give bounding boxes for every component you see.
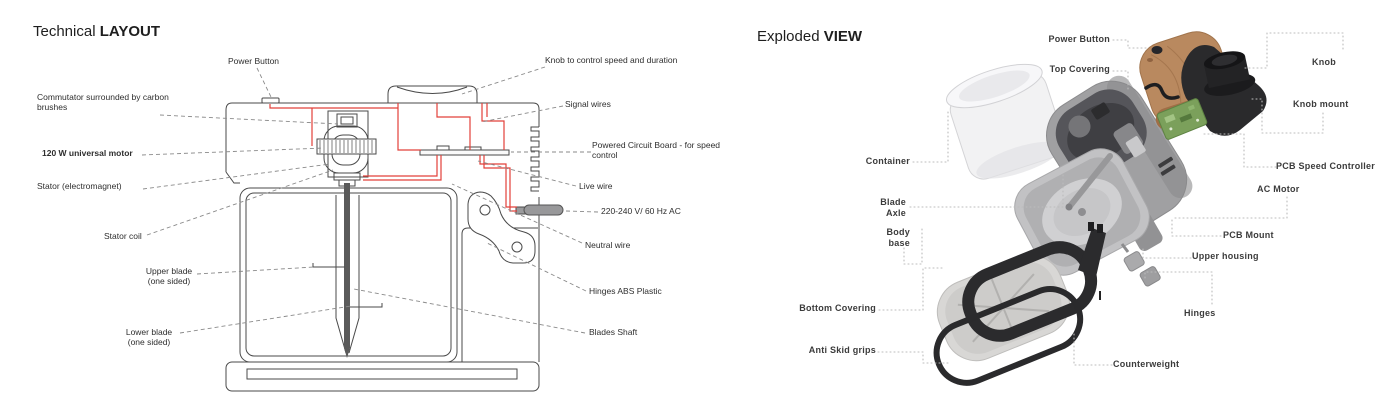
technical-drawing bbox=[226, 86, 563, 391]
label-blades-shaft: Blades Shaft bbox=[589, 327, 637, 337]
leader-motor bbox=[142, 148, 324, 155]
label-stator: Stator (electromagnet) bbox=[37, 181, 122, 191]
leader-power-button bbox=[257, 68, 271, 97]
hinge-hole-lower bbox=[512, 242, 522, 252]
label-upper-housing: Upper housing bbox=[1192, 251, 1259, 262]
blade-axle-tip bbox=[1066, 204, 1073, 211]
power-button-shape bbox=[262, 98, 279, 103]
left-panel-title: Technical LAYOUT bbox=[33, 23, 160, 40]
wire-power-button bbox=[270, 104, 398, 108]
pcb-component-1 bbox=[437, 146, 449, 150]
diagram-canvas: Technical LAYOUT Exploded VIEW Power But… bbox=[0, 0, 1400, 410]
leader-pcb-mount bbox=[1172, 218, 1221, 236]
wire-knob-mid bbox=[437, 103, 470, 150]
label-pcb-mount: PCB Mount bbox=[1223, 230, 1274, 241]
label-knob-mount: Knob mount bbox=[1293, 99, 1349, 110]
upper-blade-shape bbox=[313, 263, 345, 267]
left-title-normal: Technical bbox=[33, 23, 100, 40]
label-power-button-r: Power Button bbox=[1028, 34, 1110, 45]
leader-lower-blade bbox=[180, 306, 351, 333]
wire-knob-left bbox=[398, 103, 421, 150]
base-slot bbox=[247, 369, 517, 379]
leader-signal-wires bbox=[481, 106, 563, 122]
hinges-part bbox=[1122, 244, 1161, 287]
base-outer bbox=[226, 362, 539, 391]
exploded-render bbox=[928, 25, 1267, 392]
pcb-component-2 bbox=[465, 147, 481, 150]
leader-container bbox=[913, 112, 948, 162]
left-title-bold: LAYOUT bbox=[100, 23, 160, 40]
label-bottom-covering: Bottom Covering bbox=[786, 303, 876, 314]
heat-sink-fins bbox=[531, 127, 539, 191]
wire-motor-a bbox=[363, 155, 437, 176]
leader-pcb-speed bbox=[1203, 134, 1276, 167]
leader-live-wire bbox=[478, 161, 576, 186]
label-top-covering: Top Covering bbox=[1028, 64, 1110, 75]
wire-signal-a bbox=[482, 103, 504, 150]
motor-top-box bbox=[337, 114, 357, 127]
motor-top-box-inner bbox=[341, 117, 353, 124]
right-title-normal: Exploded bbox=[757, 28, 824, 45]
leader-hinges-abs bbox=[487, 243, 586, 291]
leader-commutator bbox=[160, 115, 338, 124]
lower-blade-shape bbox=[350, 303, 382, 307]
label-pcb: Powered Circuit Board - for speed contro… bbox=[592, 140, 734, 160]
leader-power-button-r bbox=[1113, 40, 1147, 48]
label-motor: 120 W universal motor bbox=[42, 148, 133, 158]
label-stator-coil: Stator coil bbox=[104, 231, 142, 241]
leader-voltage bbox=[566, 211, 598, 212]
leader-upper-blade bbox=[197, 267, 314, 274]
label-knob-control: Knob to control speed and duration bbox=[545, 55, 677, 65]
wood-hole bbox=[1147, 58, 1153, 62]
leader-knob-control bbox=[462, 67, 545, 94]
label-counterweight: Counterweight bbox=[1113, 359, 1179, 370]
label-live-wire: Live wire bbox=[579, 181, 613, 191]
label-body-base: Body base bbox=[868, 227, 910, 249]
hinge-hole-upper bbox=[480, 205, 490, 215]
label-power-button: Power Button bbox=[228, 56, 279, 66]
label-commutator: Commutator surrounded by carbon brushes bbox=[37, 92, 177, 112]
blades-shaft-shape bbox=[344, 183, 350, 348]
label-signal-wires: Signal wires bbox=[565, 99, 611, 109]
label-pcb-speed-controller: PCB Speed Controller bbox=[1276, 161, 1375, 172]
label-knob: Knob bbox=[1312, 57, 1336, 68]
pcb-board bbox=[420, 150, 509, 155]
label-voltage: 220-240 V/ 60 Hz AC bbox=[601, 206, 681, 216]
label-ac-motor: AC Motor bbox=[1257, 184, 1300, 195]
grinder-head-outline bbox=[226, 103, 539, 172]
right-title-bold: VIEW bbox=[824, 28, 862, 45]
leader-counterweight bbox=[1074, 331, 1112, 365]
leader-lines-left bbox=[142, 67, 598, 333]
label-container: Container bbox=[858, 156, 910, 167]
label-hinges: Hinges bbox=[1184, 308, 1216, 319]
power-button-part bbox=[1152, 46, 1163, 54]
commutator-band bbox=[317, 139, 376, 154]
leader-stator bbox=[143, 164, 330, 189]
right-panel-title: Exploded VIEW bbox=[757, 28, 862, 45]
label-anti-skid: Anti Skid grips bbox=[786, 345, 876, 356]
label-neutral-wire: Neutral wire bbox=[585, 240, 630, 250]
knob-inner-curve bbox=[397, 87, 467, 94]
diagram-artwork bbox=[0, 0, 1400, 410]
label-blade-axle: Blade Axle bbox=[864, 197, 906, 219]
leader-upper-housing bbox=[1143, 249, 1191, 258]
leader-ac-motor bbox=[1172, 197, 1287, 218]
label-lower-blade: Lower blade (one sided) bbox=[117, 327, 181, 347]
leader-blades-shaft bbox=[354, 289, 585, 333]
leader-bottom-covering bbox=[879, 268, 945, 310]
power-cord bbox=[524, 205, 563, 215]
label-hinges-abs: Hinges ABS Plastic bbox=[589, 286, 662, 296]
label-upper-blade: Upper blade (one sided) bbox=[137, 266, 201, 286]
